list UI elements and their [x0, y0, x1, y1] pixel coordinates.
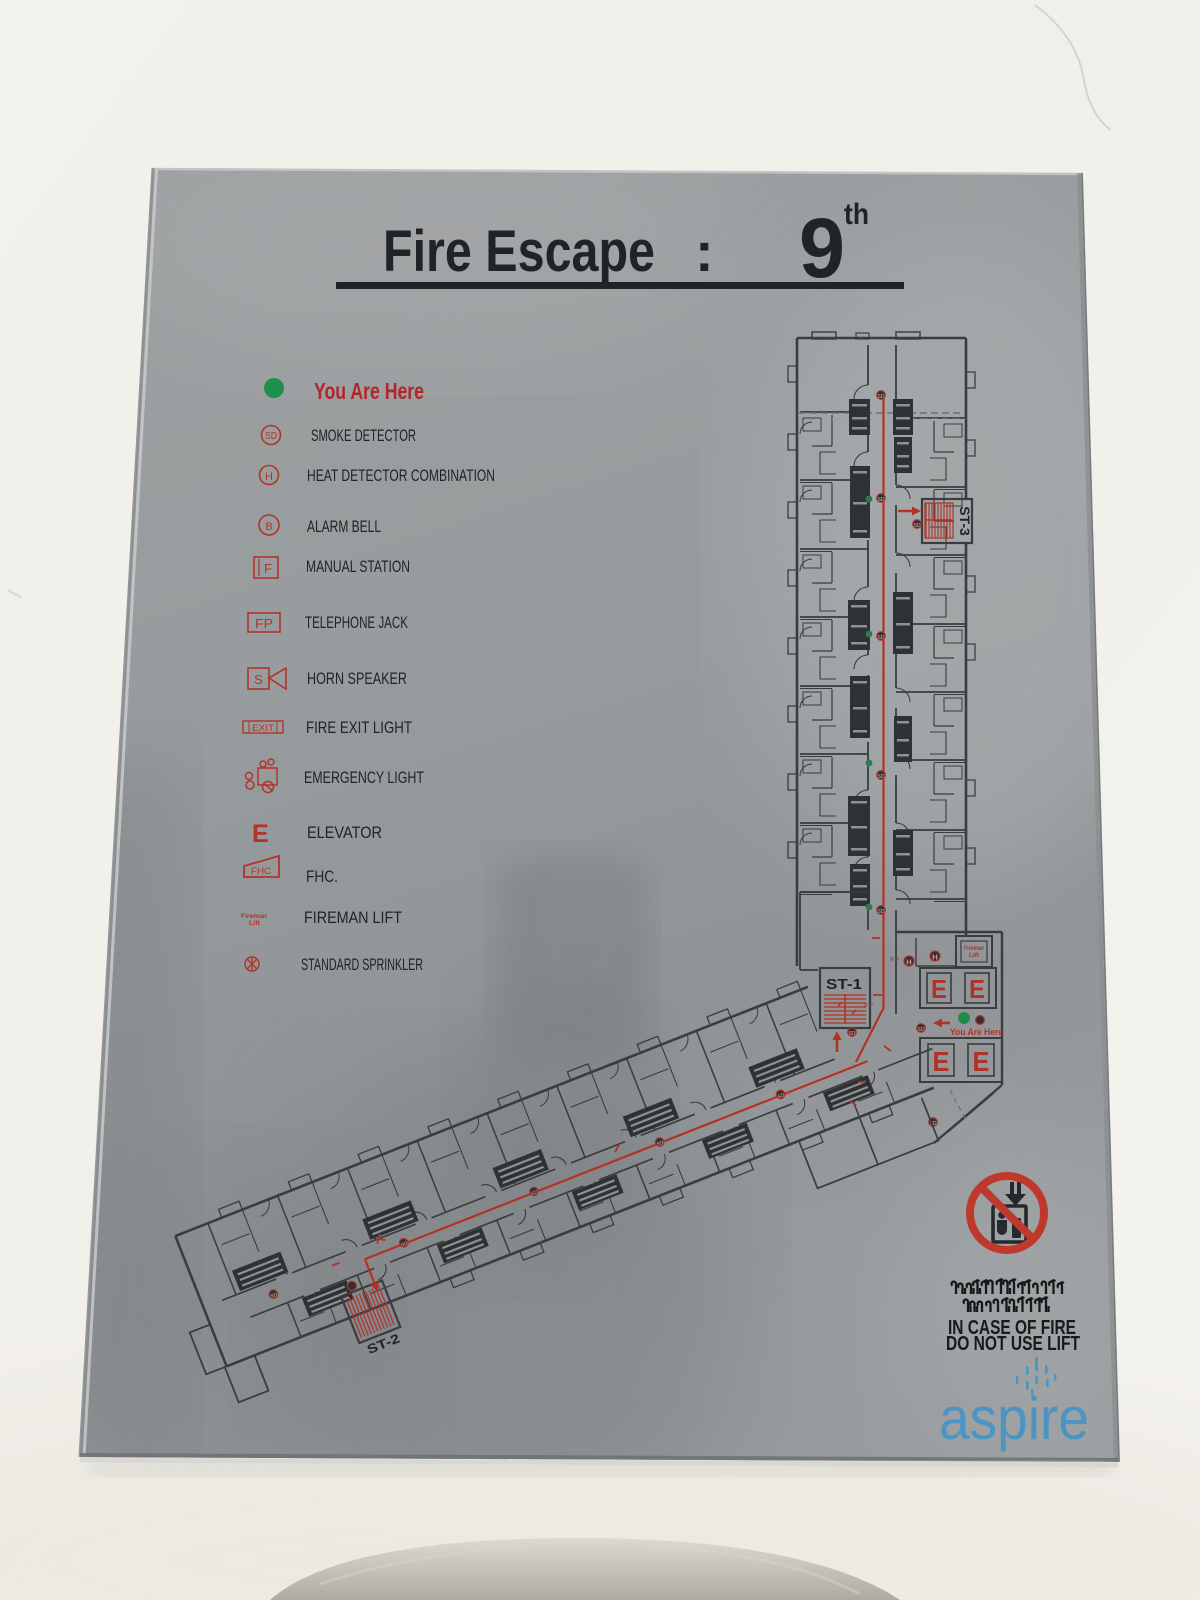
svg-text:SD: SD — [918, 1027, 925, 1033]
svg-text:SD: SD — [878, 774, 885, 780]
svg-text:ELEVATOR: ELEVATOR — [307, 824, 382, 842]
svg-text:Fire Escape: Fire Escape — [383, 219, 655, 284]
svg-text:H: H — [906, 958, 911, 967]
svg-text:th: th — [844, 198, 869, 231]
svg-text:FP: FP — [864, 1003, 873, 1010]
svg-text:E: E — [252, 820, 269, 848]
svg-text:F: F — [264, 561, 272, 576]
svg-text:E: E — [931, 974, 947, 1004]
svg-text:MANUAL STATION: MANUAL STATION — [306, 558, 410, 576]
svg-text:SD: SD — [878, 635, 885, 641]
svg-text:EXIT: EXIT — [252, 723, 275, 733]
svg-text:FIRE EXIT LIGHT: FIRE EXIT LIGHT — [306, 719, 412, 737]
svg-text:SMOKE DETECTOR: SMOKE DETECTOR — [311, 427, 416, 445]
svg-text:H: H — [932, 953, 937, 962]
svg-text:ST-3: ST-3 — [957, 506, 973, 536]
svg-text:You Are Here: You Are Here — [950, 1027, 1003, 1038]
svg-text:SD: SD — [849, 1031, 856, 1037]
svg-text:Fireman: Fireman — [964, 946, 984, 952]
svg-text:FHC: FHC — [251, 866, 272, 876]
svg-text:ALARM BELL: ALARM BELL — [307, 518, 381, 536]
svg-text:HEAT DETECTOR COMBINATION: HEAT DETECTOR COMBINATION — [307, 467, 495, 485]
svg-text:FP: FP — [255, 616, 273, 631]
svg-text:ST-1: ST-1 — [826, 976, 862, 993]
svg-text:TELEPHONE JACK: TELEPHONE JACK — [305, 614, 408, 632]
svg-text:E: E — [933, 1046, 950, 1077]
svg-text:EMERGENCY LIGHT: EMERGENCY LIGHT — [304, 769, 424, 787]
svg-text:H: H — [265, 471, 273, 483]
svg-text:FP: FP — [890, 957, 899, 964]
svg-text:B: B — [265, 521, 272, 533]
svg-text:SD: SD — [914, 523, 921, 529]
svg-text:STANDARD SPRINKLER: STANDARD SPRINKLER — [301, 956, 423, 974]
svg-text:E: E — [973, 1046, 990, 1077]
svg-text:9: 9 — [799, 201, 845, 295]
svg-text:SD: SD — [878, 394, 885, 400]
svg-text:aspire: aspire — [939, 1385, 1089, 1452]
svg-text:FIREMAN LIFT: FIREMAN LIFT — [304, 909, 402, 927]
svg-text:DO NOT USE LIFT: DO NOT USE LIFT — [946, 1333, 1080, 1355]
svg-text:E: E — [969, 974, 985, 1004]
svg-text:HORN SPEAKER: HORN SPEAKER — [307, 670, 407, 688]
svg-text:FHC.: FHC. — [306, 868, 338, 886]
svg-text:SD: SD — [265, 431, 277, 442]
svg-text:SD: SD — [878, 497, 885, 503]
svg-text:S: S — [254, 672, 263, 687]
svg-text::: : — [695, 220, 714, 283]
svg-text:Lift: Lift — [249, 920, 261, 927]
svg-text:You Are Here: You Are Here — [314, 378, 424, 404]
svg-text:SD: SD — [878, 909, 885, 915]
svg-text:Lift: Lift — [969, 953, 979, 959]
svg-text:Fireman: Fireman — [241, 913, 267, 920]
